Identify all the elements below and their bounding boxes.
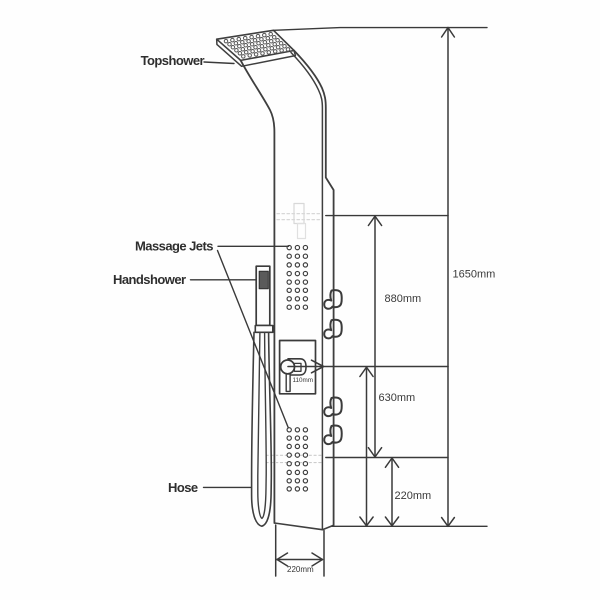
- svg-text:Topshower: Topshower: [141, 53, 205, 68]
- svg-text:880mm: 880mm: [385, 293, 422, 305]
- svg-text:220mm: 220mm: [395, 490, 432, 502]
- svg-text:Hose: Hose: [168, 480, 198, 495]
- svg-text:110mm: 110mm: [293, 377, 314, 384]
- svg-text:1650mm: 1650mm: [453, 269, 496, 281]
- svg-text:Handshower: Handshower: [113, 272, 186, 287]
- svg-text:Massage Jets: Massage Jets: [135, 239, 213, 254]
- svg-text:220mm: 220mm: [287, 565, 314, 574]
- svg-text:630mm: 630mm: [379, 392, 416, 404]
